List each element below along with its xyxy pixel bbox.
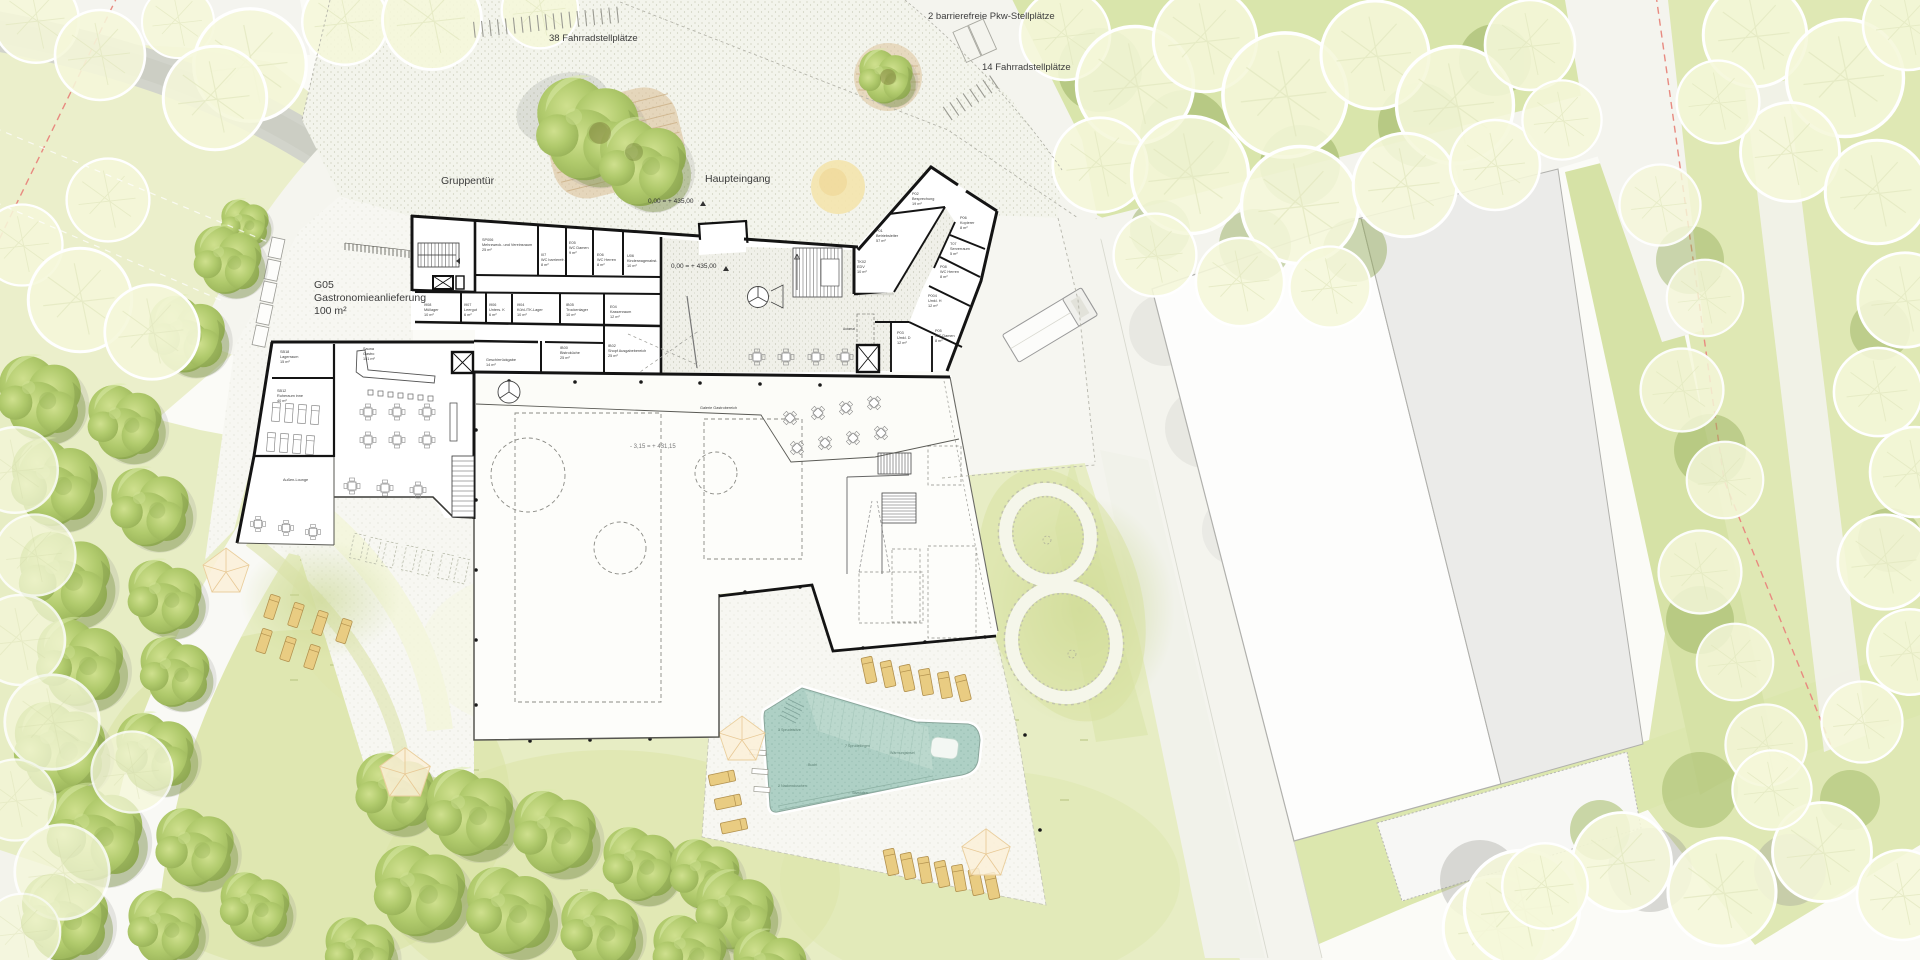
- svg-text:Kühl-/TK-Lager: Kühl-/TK-Lager: [517, 308, 543, 312]
- svg-text:Shopf Ausgabebereich: Shopf Ausgabebereich: [608, 349, 646, 353]
- svg-text:Außen-Lounge: Außen-Lounge: [283, 478, 308, 482]
- svg-text:57 m²: 57 m²: [876, 239, 886, 243]
- svg-text:10 m²: 10 m²: [857, 270, 867, 274]
- svg-text:IB02: IB02: [608, 344, 616, 348]
- svg-text:Lagerraum: Lagerraum: [280, 355, 298, 359]
- svg-text:Müllager: Müllager: [424, 308, 439, 312]
- svg-text:T07: T07: [950, 242, 957, 246]
- svg-text:7 Sprudelliegen: 7 Sprudelliegen: [845, 744, 870, 748]
- svg-text:TK02: TK02: [857, 260, 866, 264]
- svg-text:12 m²: 12 m²: [928, 304, 938, 308]
- svg-text:9 m²: 9 m²: [569, 251, 577, 255]
- svg-text:6 m²: 6 m²: [489, 313, 497, 317]
- svg-text:IB00: IB00: [560, 346, 568, 350]
- svg-text:10 m²: 10 m²: [517, 313, 527, 317]
- svg-text:I906: I906: [489, 303, 496, 307]
- svg-text:E04: E04: [610, 305, 617, 309]
- svg-text:WC Herren: WC Herren: [940, 270, 959, 274]
- svg-text:Trockenlager: Trockenlager: [566, 308, 589, 312]
- svg-text:151 m²: 151 m²: [363, 357, 376, 361]
- svg-text:Gruppentür: Gruppentür: [441, 175, 495, 187]
- svg-text:I07: I07: [541, 253, 546, 257]
- svg-text:0,00 = + 435,00: 0,00 = + 435,00: [648, 198, 694, 205]
- svg-text:14 m²: 14 m²: [486, 363, 496, 367]
- svg-text:Bucht: Bucht: [808, 763, 817, 767]
- svg-text:2 barrierefreie Pkw-Stellplätz: 2 barrierefreie Pkw-Stellplätze: [928, 11, 1055, 22]
- svg-text:Umkl. H: Umkl. H: [928, 299, 942, 303]
- svg-text:Ruheraum inne: Ruheraum inne: [277, 394, 303, 398]
- svg-text:3 Sprudelsitze: 3 Sprudelsitze: [778, 728, 801, 732]
- svg-text:Kopierer: Kopierer: [960, 221, 975, 225]
- svg-text:14 Fahrradstellplätze: 14 Fahrradstellplätze: [982, 62, 1071, 73]
- svg-text:8 m²: 8 m²: [597, 263, 605, 267]
- svg-text:8 m²: 8 m²: [541, 263, 549, 267]
- svg-text:Besprechung: Besprechung: [912, 197, 934, 201]
- svg-text:10 m²: 10 m²: [627, 264, 637, 268]
- svg-text:12 m²: 12 m²: [897, 341, 907, 345]
- svg-text:P08: P08: [940, 265, 947, 269]
- svg-text:Galerie Gastrobereich: Galerie Gastrobereich: [700, 406, 737, 410]
- svg-text:E05: E05: [569, 241, 576, 245]
- svg-text:10 m²: 10 m²: [424, 313, 434, 317]
- svg-text:U06: U06: [627, 254, 634, 258]
- svg-text:12 m²: 12 m²: [610, 315, 620, 319]
- svg-text:5 m²: 5 m²: [950, 252, 958, 256]
- svg-text:6 m²: 6 m²: [464, 313, 472, 317]
- svg-text:2 Nackenduschen: 2 Nackenduschen: [778, 784, 807, 788]
- svg-text:WC Damen: WC Damen: [935, 334, 955, 338]
- svg-text:Leergut: Leergut: [464, 308, 478, 312]
- svg-text:Unters. K: Unters. K: [489, 308, 505, 312]
- svg-text:25 m²: 25 m²: [560, 356, 570, 360]
- svg-text:P03: P03: [897, 331, 904, 335]
- svg-text:P02: P02: [912, 192, 919, 196]
- svg-text:8 m²: 8 m²: [935, 339, 943, 343]
- svg-text:Gastronomieanlieferung: Gastronomieanlieferung: [314, 292, 426, 304]
- svg-text:0,00 = + 435,00: 0,00 = + 435,00: [671, 263, 717, 270]
- svg-text:P06: P06: [960, 216, 967, 220]
- svg-text:Sitzstufen: Sitzstufen: [852, 791, 868, 795]
- svg-text:WC Damen: WC Damen: [569, 246, 589, 250]
- svg-text:WC Herren: WC Herren: [597, 258, 616, 262]
- svg-text:19 m²: 19 m²: [912, 202, 922, 206]
- svg-text:Serverraum: Serverraum: [950, 247, 970, 251]
- svg-text:EDV: EDV: [857, 265, 865, 269]
- svg-text:Wärmungsinsel: Wärmungsinsel: [890, 751, 915, 755]
- svg-text:40 m²: 40 m²: [277, 399, 287, 403]
- svg-text:Sauna: Sauna: [363, 347, 375, 351]
- svg-text:25 m²: 25 m²: [608, 354, 618, 358]
- svg-text:IB05: IB05: [566, 303, 574, 307]
- svg-text:Kinderwagenabst.: Kinderwagenabst.: [627, 259, 657, 263]
- svg-text:15 m²: 15 m²: [280, 360, 290, 364]
- svg-text:8 m²: 8 m²: [940, 275, 948, 279]
- svg-text:38 Fahrradstellplätze: 38 Fahrradstellplätze: [549, 33, 638, 44]
- svg-text:P004: P004: [928, 294, 937, 298]
- svg-text:Umkl. D: Umkl. D: [897, 336, 911, 340]
- svg-text:SB12: SB12: [277, 389, 286, 393]
- svg-text:Gastro: Gastro: [363, 352, 374, 356]
- svg-text:Geschirrrückgabe: Geschirrrückgabe: [486, 358, 516, 362]
- svg-text:100 m²: 100 m²: [314, 305, 347, 317]
- svg-text:SB18: SB18: [280, 350, 289, 354]
- svg-text:Bistroküche: Bistroküche: [560, 351, 580, 355]
- svg-text:25 m²: 25 m²: [482, 248, 492, 252]
- svg-text:I907: I907: [464, 303, 471, 307]
- svg-text:Kassenraum: Kassenraum: [610, 310, 631, 314]
- svg-text:I904: I904: [517, 303, 524, 307]
- svg-text:WC barrierefr.: WC barrierefr.: [541, 258, 565, 262]
- svg-text:Haupteingang: Haupteingang: [705, 173, 771, 185]
- svg-text:Betriebsleiter: Betriebsleiter: [876, 234, 899, 238]
- svg-text:Automat: Automat: [843, 327, 855, 331]
- svg-text:Mehrzweck- und Vereinsraum: Mehrzweck- und Vereinsraum: [482, 243, 532, 247]
- svg-text:P05: P05: [935, 329, 942, 333]
- svg-text:E06: E06: [597, 253, 604, 257]
- svg-text:P01: P01: [876, 229, 883, 233]
- svg-text:SP006: SP006: [482, 238, 493, 242]
- svg-text:8 m²: 8 m²: [960, 226, 968, 230]
- svg-text:- 3,15 = + 431,15: - 3,15 = + 431,15: [630, 444, 676, 450]
- svg-text:10 m²: 10 m²: [566, 313, 576, 317]
- svg-text:G05: G05: [314, 279, 334, 291]
